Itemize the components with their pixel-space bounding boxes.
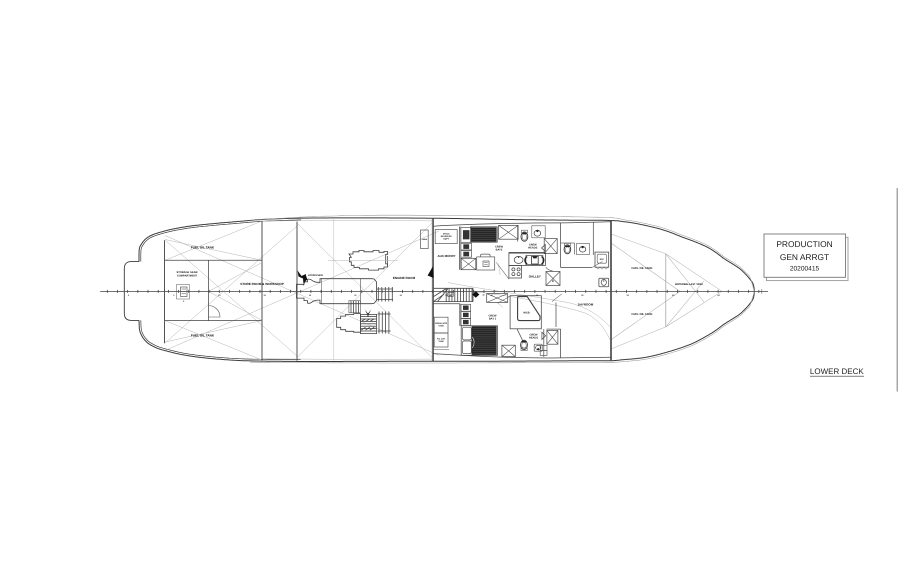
svg-text:26: 26 bbox=[483, 293, 485, 296]
svg-text:DAYROOM: DAYROOM bbox=[578, 303, 594, 307]
svg-text:TANK: TANK bbox=[438, 340, 444, 343]
svg-text:PRODUCTION: PRODUCTION bbox=[776, 239, 832, 249]
svg-text:FUEL OIL TANK: FUEL OIL TANK bbox=[191, 334, 215, 338]
svg-text:WATERBALLAST TANK: WATERBALLAST TANK bbox=[675, 283, 703, 286]
svg-text:WCB: WCB bbox=[523, 311, 529, 314]
svg-text:STORE ROOM & WORKSHOP: STORE ROOM & WORKSHOP bbox=[240, 282, 284, 286]
svg-text:BAY2: BAY2 bbox=[496, 249, 503, 252]
svg-text:AUX MCHRY: AUX MCHRY bbox=[437, 254, 455, 258]
svg-text:BAY 1: BAY 1 bbox=[489, 318, 497, 321]
svg-text:COMPARTMENT: COMPARTMENT bbox=[177, 275, 198, 278]
svg-text:HEADS: HEADS bbox=[528, 247, 537, 250]
svg-text:SWBD: SWBD bbox=[422, 238, 428, 241]
svg-text:TANK: TANK bbox=[438, 325, 444, 328]
svg-text:FUEL OIL TANK: FUEL OIL TANK bbox=[632, 266, 653, 270]
svg-text:LOWER DECK: LOWER DECK bbox=[810, 367, 864, 376]
svg-text:FUEL OIL TANK: FUEL OIL TANK bbox=[632, 312, 653, 316]
svg-text:EQPT: EQPT bbox=[443, 237, 449, 240]
svg-text:20200415: 20200415 bbox=[790, 265, 820, 272]
svg-text:FUEL OIL TANK: FUEL OIL TANK bbox=[191, 245, 215, 249]
svg-text:HYDROPHOR: HYDROPHOR bbox=[308, 274, 323, 277]
svg-text:GALLEY: GALLEY bbox=[529, 274, 541, 278]
svg-text:HEADS: HEADS bbox=[529, 337, 538, 340]
svg-text:UP: UP bbox=[449, 294, 453, 297]
svg-text:ENGINE ROOM: ENGINE ROOM bbox=[393, 276, 416, 280]
svg-text:GEN ARRGT: GEN ARRGT bbox=[780, 252, 829, 262]
